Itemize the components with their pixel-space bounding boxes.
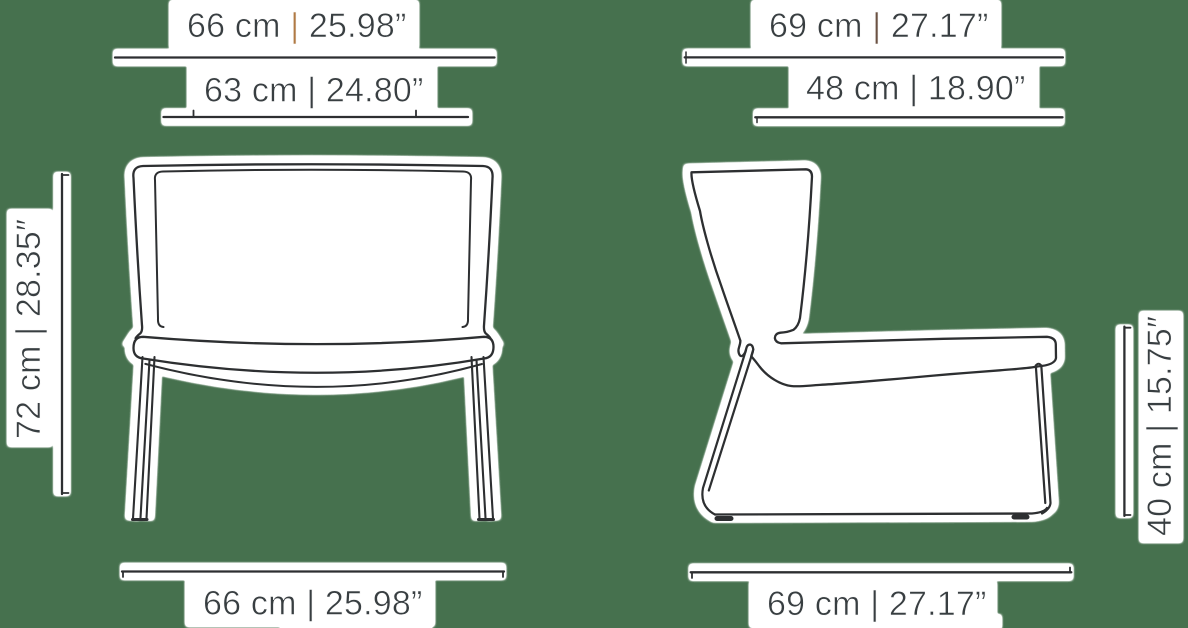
svg-text:66 cm | 25.98”: 66 cm | 25.98” [187, 7, 407, 45]
svg-text:63 cm | 24.80”: 63 cm | 24.80” [204, 72, 424, 110]
svg-text:66 cm | 25.98”: 66 cm | 25.98” [203, 585, 423, 623]
svg-text:72 cm | 28.35″: 72 cm | 28.35″ [10, 219, 48, 439]
svg-text:48 cm | 18.90”: 48 cm | 18.90” [806, 70, 1026, 108]
svg-text:69 cm | 27.17”: 69 cm | 27.17” [769, 7, 989, 45]
svg-text:40 cm | 15.75″: 40 cm | 15.75″ [1141, 316, 1179, 536]
svg-text:69 cm | 27.17”: 69 cm | 27.17” [767, 585, 987, 623]
